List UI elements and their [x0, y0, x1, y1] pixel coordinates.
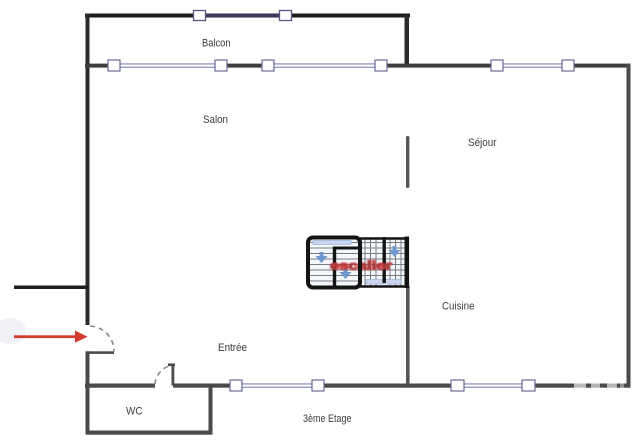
svg-text:Cuisine: Cuisine: [442, 301, 475, 313]
svg-text:Entrée: Entrée: [218, 342, 247, 354]
svg-text:Séjour: Séjour: [468, 137, 497, 149]
svg-text:Balcon: Balcon: [202, 37, 231, 49]
svg-text:WC: WC: [126, 405, 143, 417]
svg-text:3ème Etage: 3ème Etage: [303, 413, 352, 425]
svg-text:Salon: Salon: [203, 114, 228, 126]
